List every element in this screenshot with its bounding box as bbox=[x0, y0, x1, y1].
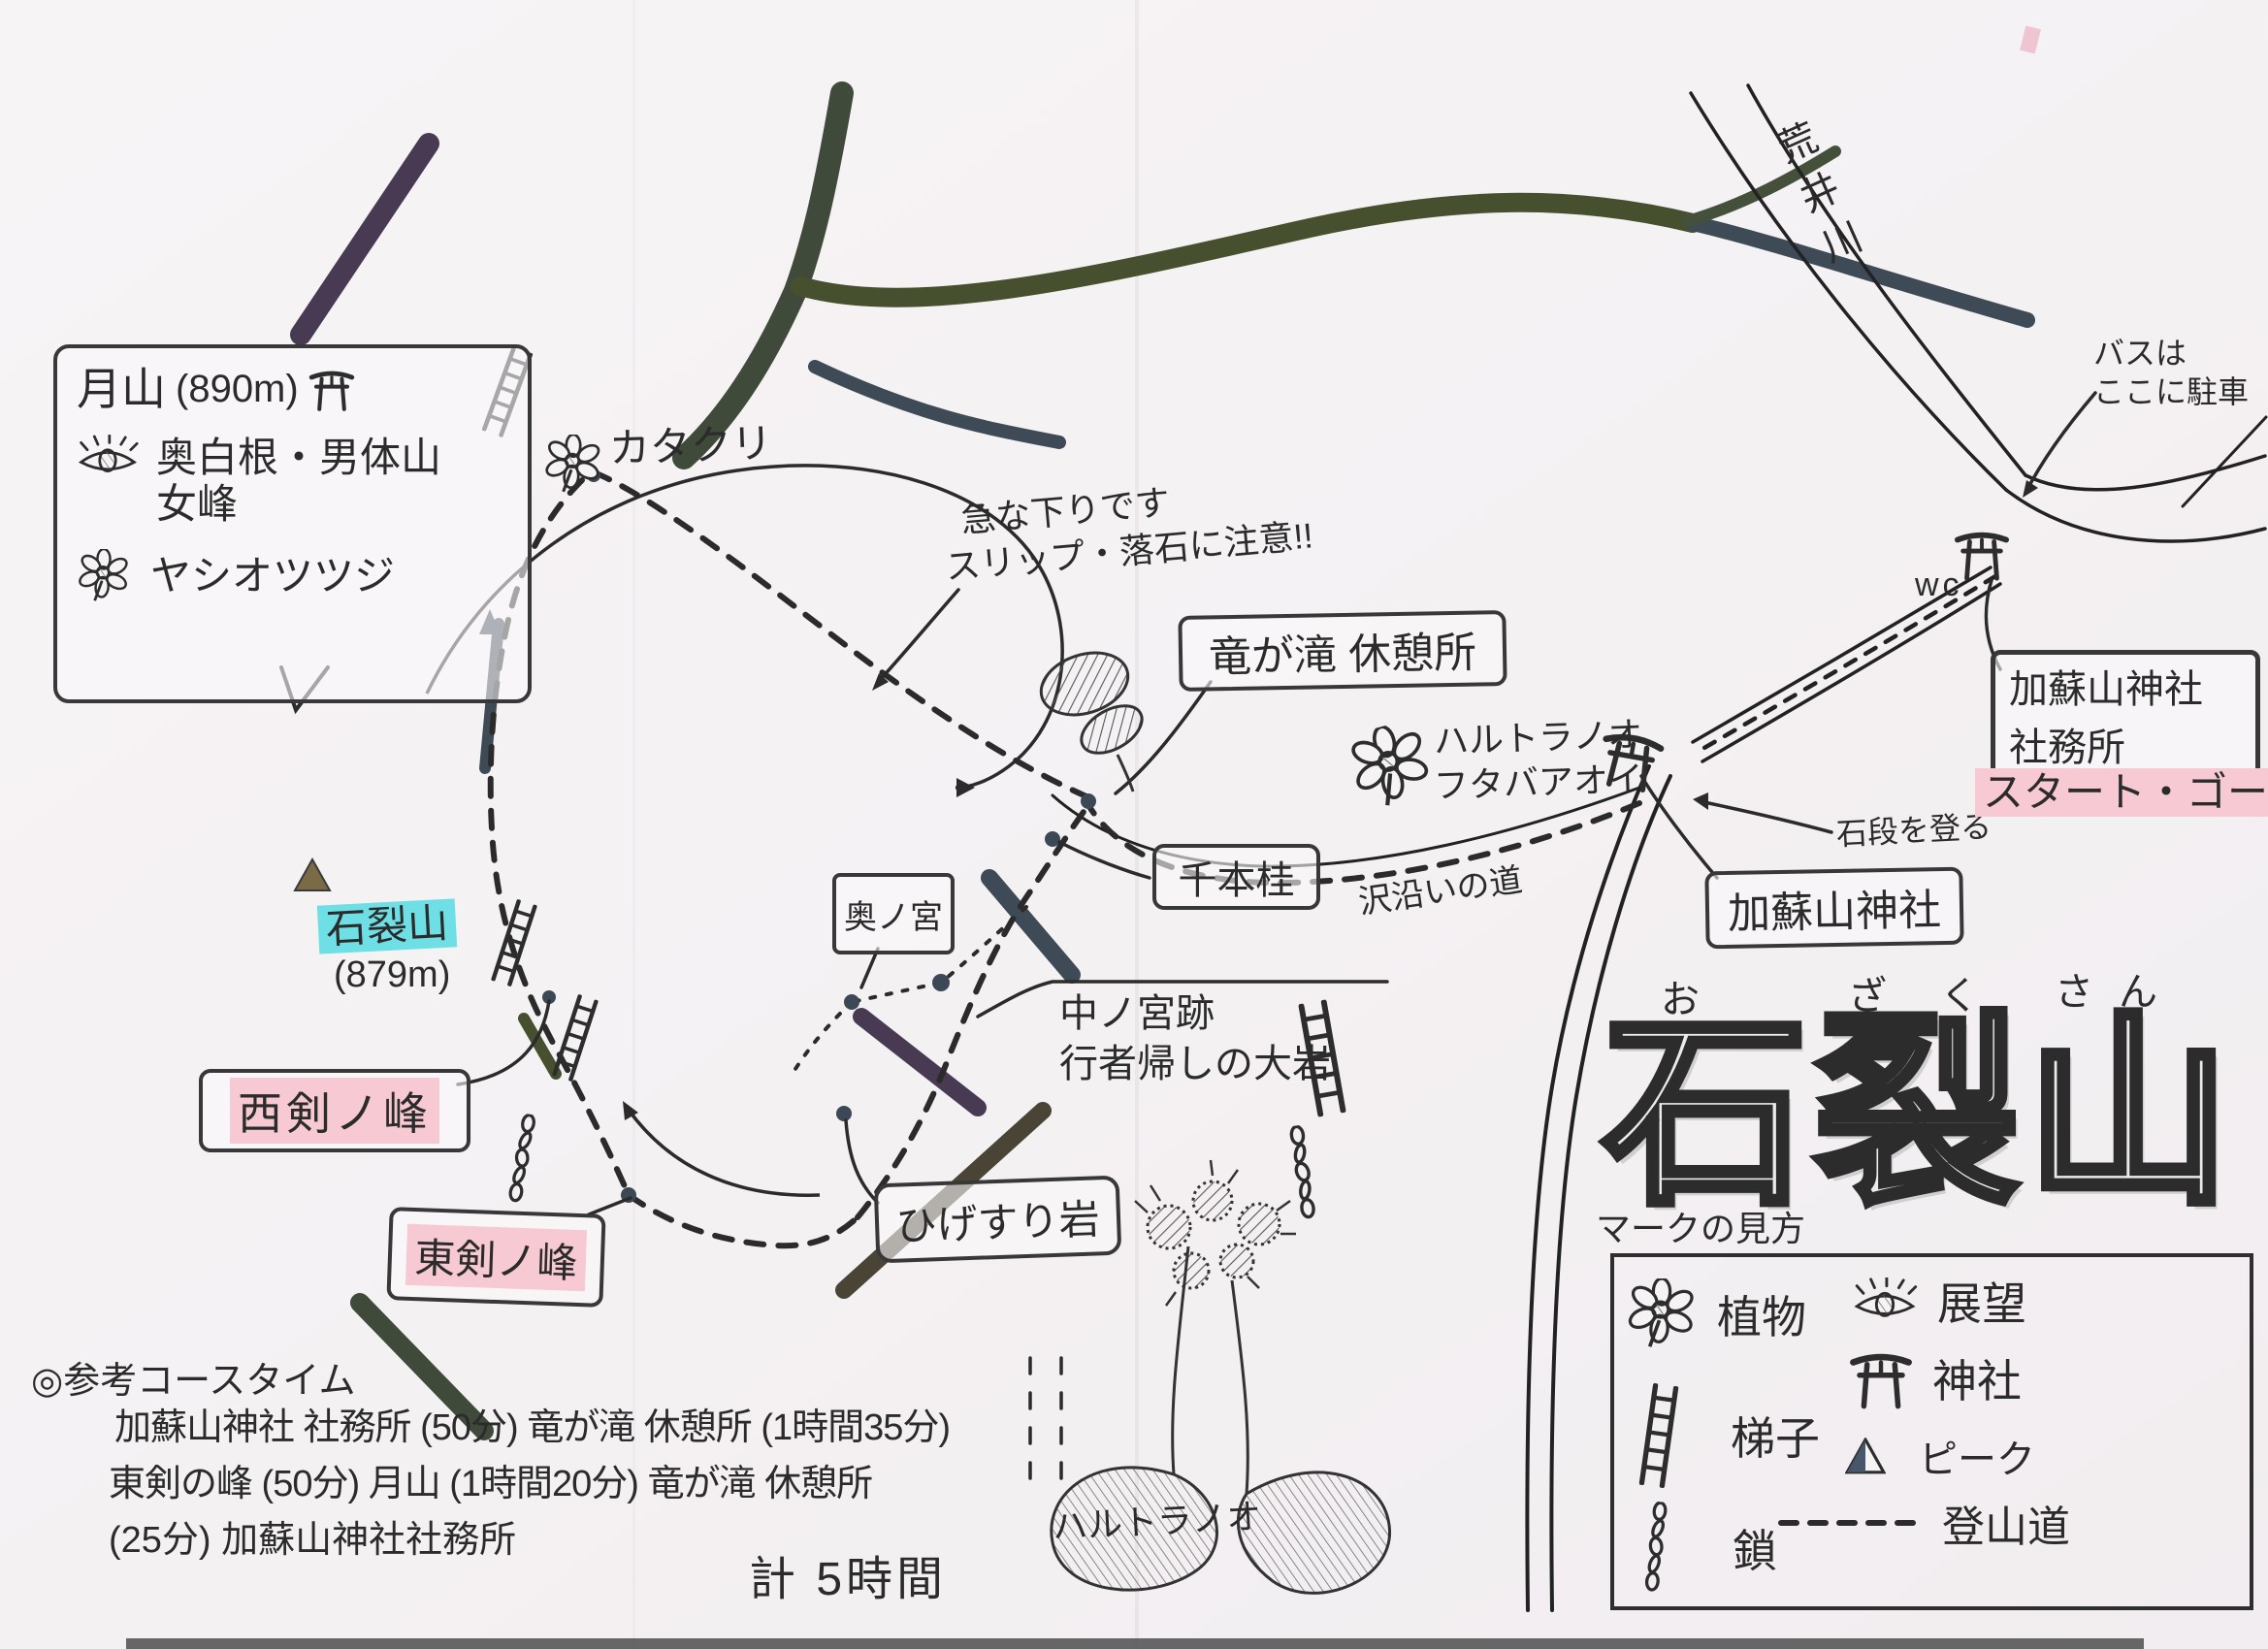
senbonkatsura-box: 千本桂 bbox=[1152, 844, 1320, 910]
ladder-icon bbox=[1634, 1379, 1683, 1492]
higesuri-iwa-label: ひげすり岩 bbox=[894, 1186, 1100, 1252]
summit-elevation: (890m) bbox=[176, 367, 299, 411]
flower-icon bbox=[544, 435, 601, 492]
shamusho-label-line1: 加蘇山神社 bbox=[2009, 658, 2203, 714]
legend-item-ladder: 梯子 bbox=[1641, 1381, 1820, 1490]
title-char-yama: 山 bbox=[2025, 1011, 2231, 1216]
ryugataki-rest-label: 竜が滝 休憩所 bbox=[1208, 618, 1476, 685]
legend-item-peak: ピーク bbox=[1845, 1428, 2035, 1484]
kasoyama-jinja-label: 加蘇山神社 bbox=[1727, 875, 1941, 941]
futabaaoi-label: フタバアオイ bbox=[1433, 759, 1643, 806]
peak-icon bbox=[295, 859, 330, 890]
flower-icon bbox=[77, 549, 131, 603]
legend-label-view: 展望 bbox=[1937, 1269, 2026, 1333]
legend-title: マークの見方 bbox=[1596, 1209, 1805, 1248]
course-time-total: 計 5時間 bbox=[749, 1540, 947, 1608]
chain-icon bbox=[1289, 1125, 1316, 1217]
bus-note-line2: ここに駐車 bbox=[2093, 374, 2249, 410]
okunomiya-label: 奥ノ宮 bbox=[844, 890, 943, 938]
ozakusan-summit-label: 石裂山 bbox=[317, 898, 457, 954]
legend-item-plant: 植物 bbox=[1626, 1278, 1806, 1350]
wc-label: wc bbox=[1915, 566, 1963, 604]
torii-icon bbox=[308, 366, 355, 412]
waterfall-sketch bbox=[1033, 642, 1150, 792]
title-char-saku: 裂 bbox=[1814, 1011, 2020, 1216]
course-time-line3: (25分) 加蘇山神社社務所 bbox=[109, 1509, 516, 1563]
nishiken-label: 西剣ノ峰 bbox=[230, 1078, 439, 1144]
legend-label-peak: ピーク bbox=[1919, 1428, 2035, 1484]
peak-icon bbox=[1845, 1438, 1886, 1474]
legend-label-plant: 植物 bbox=[1717, 1282, 1806, 1346]
nakanomiya-label-line1: 中ノ宮跡 bbox=[1059, 991, 1215, 1036]
flower-icon bbox=[1343, 717, 1438, 812]
higesuri-iwa-bubble: ひげすり岩 bbox=[874, 1176, 1122, 1264]
okunomiya-bubble: 奥ノ宮 bbox=[832, 873, 955, 954]
bus-note-line1: バスは bbox=[2093, 336, 2187, 372]
legend-label-trail: 登山道 bbox=[1942, 1492, 2070, 1554]
view-target-line2: 女峰 bbox=[156, 481, 441, 528]
course-time-line1: 加蘇山神社 社務所 (50分) 竜が滝 休憩所 (1時間35分) bbox=[114, 1397, 950, 1450]
course-time-heading: ◎参考コースタイム bbox=[31, 1350, 356, 1404]
eye-icon bbox=[1852, 1277, 1918, 1324]
chain-icon bbox=[507, 1114, 536, 1201]
ozakusan-hand-drawn-trail-map: 月山 (890m) 奥白根・男体山 女峰 ヤシオツツジ カタクリ 急な下りです … bbox=[0, 0, 2268, 1649]
shamusho-label-line2: 社務所 bbox=[2009, 716, 2125, 772]
summit-name: 月山 bbox=[77, 364, 166, 415]
legend-item-trail: 登山道 bbox=[1777, 1492, 2070, 1554]
start-goal-label: スタート・ゴール bbox=[1975, 768, 2268, 817]
senbonkatsura-label: 千本桂 bbox=[1179, 849, 1295, 905]
legend-box: 植物 梯子 鎖 展望 神社 ピーク 登山道 bbox=[1610, 1253, 2253, 1610]
legend-item-view: 展望 bbox=[1852, 1269, 2026, 1333]
legend-label-chain: 鎖 bbox=[1733, 1516, 1777, 1580]
legend-item-chain: 鎖 bbox=[1643, 1502, 1777, 1595]
trail-icon bbox=[1777, 1513, 1923, 1533]
title-char-ishi: 石 bbox=[1603, 1011, 1808, 1216]
torii-icon bbox=[1849, 1346, 1913, 1410]
ladder-icon bbox=[494, 901, 535, 985]
chain-icon bbox=[1638, 1501, 1673, 1596]
higashiken-label: 東剣ノ峰 bbox=[405, 1223, 586, 1290]
ryugataki-rest-box: 竜が滝 休憩所 bbox=[1178, 610, 1507, 692]
course-time-line2: 東剣の峰 (50分) 月山 (1時間20分) 竜が滝 休憩所 bbox=[109, 1453, 872, 1506]
ozakusan-elevation: (879m) bbox=[334, 954, 450, 997]
view-target-line1: 奥白根・男体山 bbox=[156, 435, 441, 481]
eye-icon bbox=[77, 435, 139, 479]
legend-label-shrine: 神社 bbox=[1932, 1346, 2022, 1410]
legend-item-shrine: 神社 bbox=[1849, 1346, 2022, 1410]
flower-icon bbox=[1626, 1278, 1698, 1350]
legend-label-ladder: 梯子 bbox=[1731, 1404, 1820, 1468]
harutoranoo-label: ハルトラノオ bbox=[1433, 714, 1643, 761]
kasoyama-jinja-box: 加蘇山神社 bbox=[1704, 867, 1963, 950]
nishiken-box: 西剣ノ峰 bbox=[199, 1069, 470, 1152]
shamusho-box: 加蘇山神社 社務所 bbox=[1991, 650, 2260, 780]
ladder-icon bbox=[555, 996, 597, 1080]
katakuri-label: カタクリ bbox=[608, 420, 773, 472]
nakanomiya-label-line2: 行者帰しの大岩 bbox=[1059, 1042, 1331, 1086]
tsukiyama-info-box: 月山 (890m) 奥白根・男体山 女峰 ヤシオツツジ bbox=[53, 344, 532, 703]
higashiken-box: 東剣ノ峰 bbox=[386, 1207, 605, 1308]
summit-plant-label: ヤシオツツジ bbox=[150, 553, 395, 599]
